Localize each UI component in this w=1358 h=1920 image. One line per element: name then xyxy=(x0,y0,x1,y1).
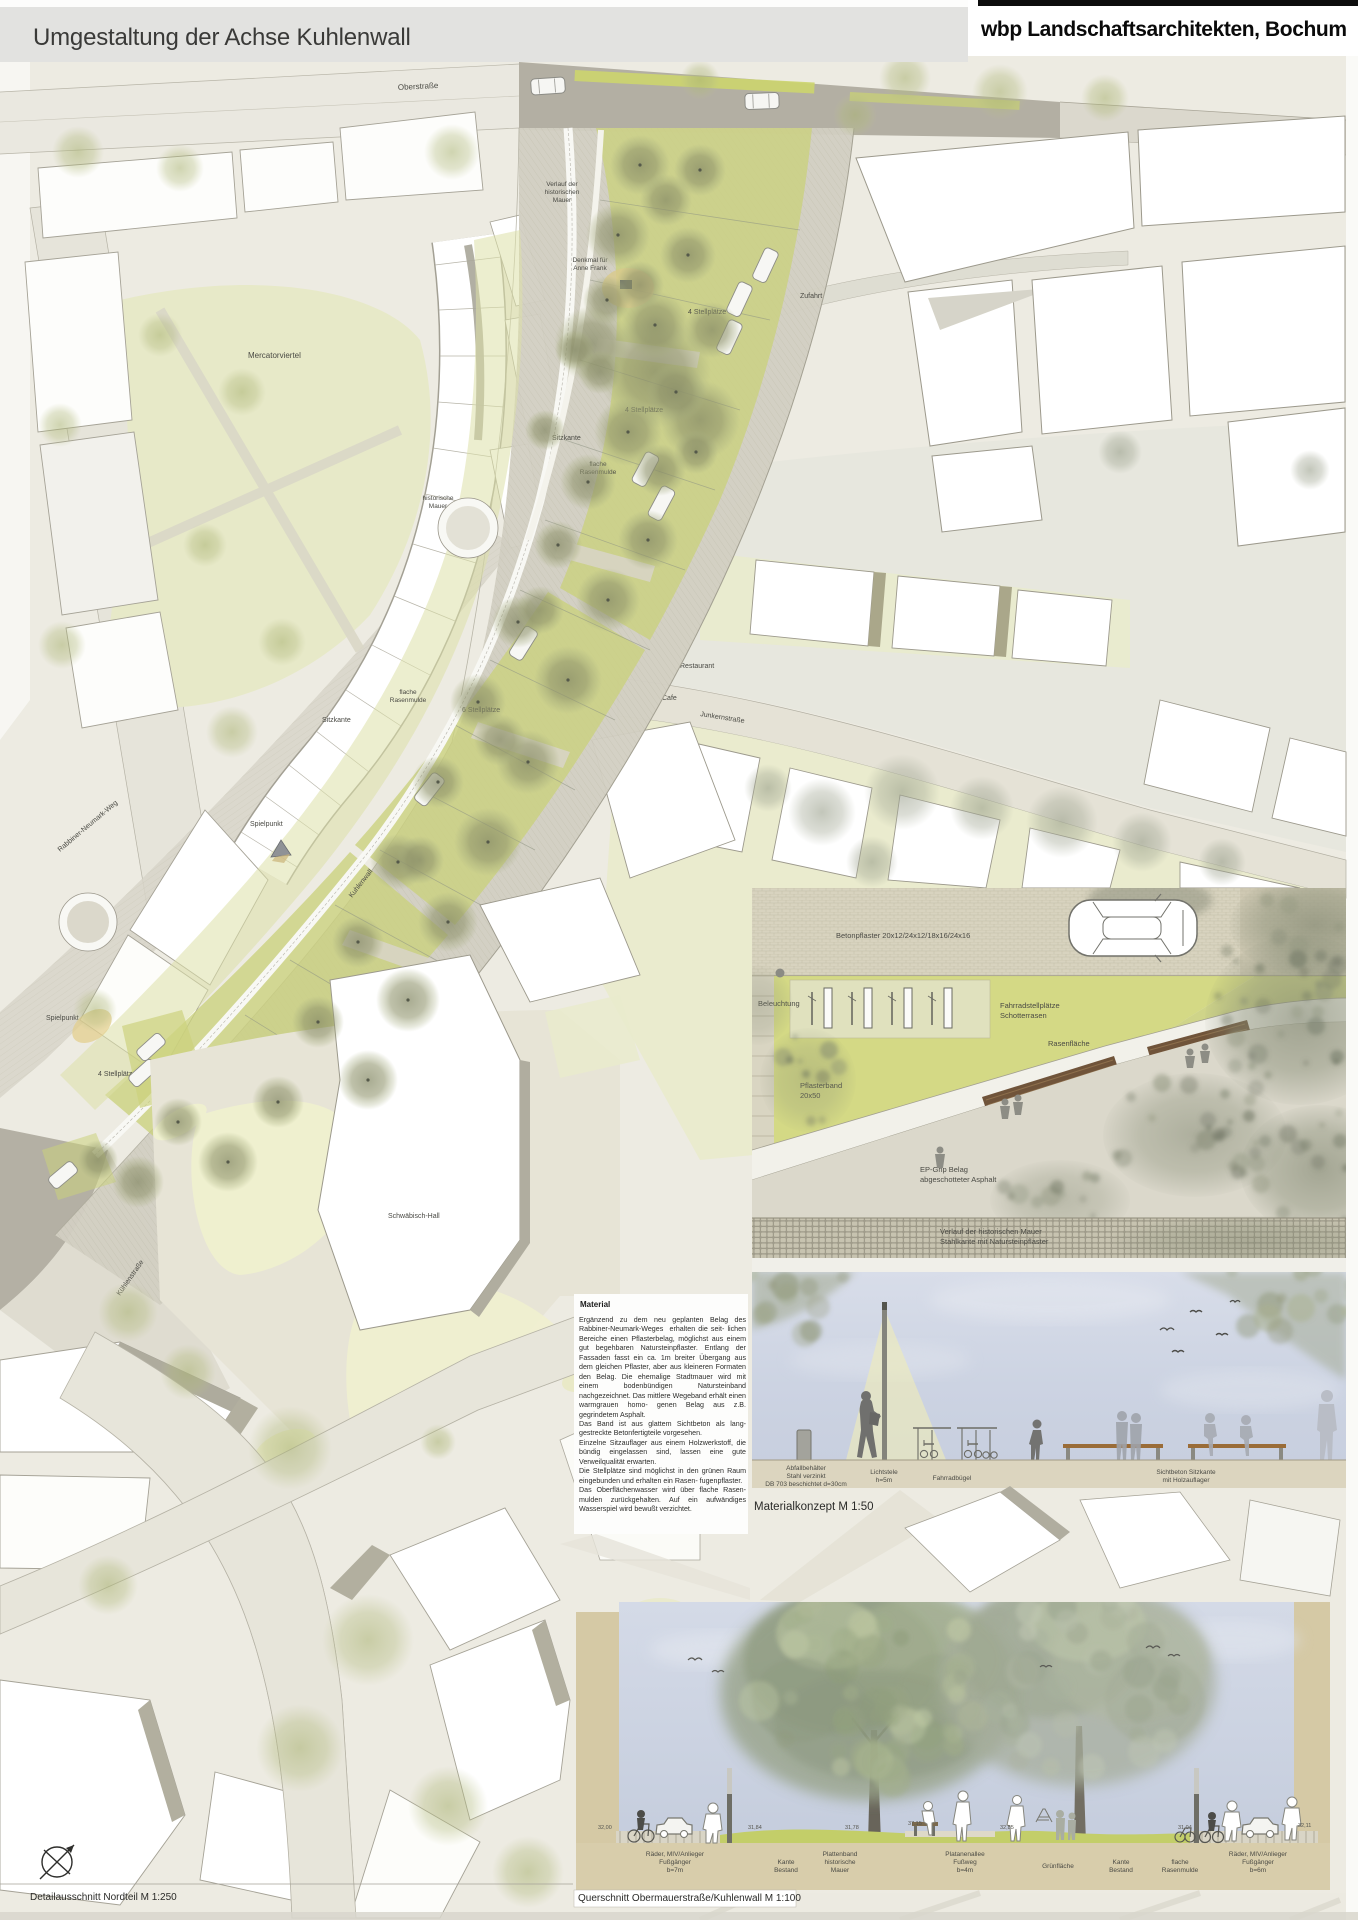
svg-text:31,84: 31,84 xyxy=(748,1825,762,1831)
svg-text:flache: flache xyxy=(399,689,417,696)
svg-text:Verlauf der historischen Mauer: Verlauf der historischen Mauer xyxy=(940,1227,1042,1236)
svg-text:Fußgänger: Fußgänger xyxy=(1242,1859,1275,1866)
svg-text:historische: historische xyxy=(824,1859,855,1866)
svg-text:Abfallbehälter: Abfallbehälter xyxy=(786,1465,827,1472)
svg-text:Spielpunkt: Spielpunkt xyxy=(250,821,283,828)
svg-text:mit Holzauflager: mit Holzauflager xyxy=(1163,1477,1211,1484)
svg-text:Kante: Kante xyxy=(1113,1859,1130,1866)
svg-text:Grünfläche: Grünfläche xyxy=(1042,1863,1074,1870)
svg-text:flache: flache xyxy=(1171,1859,1189,1866)
svg-text:Rasenfläche: Rasenfläche xyxy=(1048,1039,1090,1048)
svg-text:Fußgänger: Fußgänger xyxy=(659,1859,692,1866)
svg-text:b=7m: b=7m xyxy=(667,1867,683,1874)
svg-text:Fahrradstellplätze: Fahrradstellplätze xyxy=(1000,1001,1060,1010)
svg-text:37,15: 37,15 xyxy=(908,1821,922,1827)
svg-text:b=4m: b=4m xyxy=(957,1867,973,1874)
svg-text:Stahlkante mit Natursteinpflas: Stahlkante mit Natursteinpflaster xyxy=(940,1237,1049,1246)
svg-text:Räder, MIV/Anlieger: Räder, MIV/Anlieger xyxy=(1229,1851,1288,1858)
svg-text:Mauer: Mauer xyxy=(553,197,572,204)
svg-text:DB 703 beschichtet d=30cm: DB 703 beschichtet d=30cm xyxy=(765,1481,846,1488)
svg-text:Bestand: Bestand xyxy=(1109,1867,1133,1874)
svg-text:historische: historische xyxy=(422,495,453,502)
svg-text:Stahl verzinkt: Stahl verzinkt xyxy=(786,1473,825,1480)
svg-text:Plattenband: Plattenband xyxy=(823,1851,858,1858)
svg-text:Lichtstele: Lichtstele xyxy=(870,1469,898,1476)
svg-text:Fußweg: Fußweg xyxy=(953,1859,977,1866)
svg-text:EP-Grip Belag: EP-Grip Belag xyxy=(920,1165,968,1174)
svg-text:Betonpflaster 20x12/24x12/18x1: Betonpflaster 20x12/24x12/18x16/24x16 xyxy=(836,931,970,940)
svg-text:Platanenallee: Platanenallee xyxy=(945,1851,985,1858)
svg-text:abgeschotteter Asphalt: abgeschotteter Asphalt xyxy=(920,1175,997,1184)
svg-text:Detailausschnitt Nordteil M 1: Detailausschnitt Nordteil M 1:250 xyxy=(30,1892,177,1903)
svg-text:32,11: 32,11 xyxy=(1298,1823,1311,1829)
svg-text:Verlauf der: Verlauf der xyxy=(546,181,578,188)
svg-text:Sichtbeton Sitzkante: Sichtbeton Sitzkante xyxy=(1156,1469,1216,1476)
svg-text:Mauer: Mauer xyxy=(429,503,448,510)
svg-text:Mauer: Mauer xyxy=(831,1867,850,1874)
svg-text:Spielpunkt: Spielpunkt xyxy=(46,1015,79,1022)
svg-text:Schotterrasen: Schotterrasen xyxy=(1000,1011,1047,1020)
svg-text:32,85: 32,85 xyxy=(1000,1825,1014,1831)
svg-text:Restaurant: Restaurant xyxy=(680,663,714,670)
svg-text:Fahrradbügel: Fahrradbügel xyxy=(933,1475,972,1482)
svg-text:31,04: 31,04 xyxy=(1178,1825,1192,1831)
svg-text:32,00: 32,00 xyxy=(598,1825,612,1831)
svg-text:b=6m: b=6m xyxy=(1250,1867,1266,1874)
svg-text:h=5m: h=5m xyxy=(876,1477,892,1484)
svg-text:Mercatorviertel: Mercatorviertel xyxy=(248,351,301,360)
svg-text:31,78: 31,78 xyxy=(845,1825,859,1831)
svg-text:Rasenmulde: Rasenmulde xyxy=(390,697,427,704)
svg-text:Sitzkante: Sitzkante xyxy=(322,717,351,724)
svg-text:Materialkonzept M 1:50: Materialkonzept M 1:50 xyxy=(754,1501,874,1513)
svg-text:Räder, MIV/Anlieger: Räder, MIV/Anlieger xyxy=(646,1851,705,1858)
svg-text:Bestand: Bestand xyxy=(774,1867,798,1874)
svg-text:Material: Material xyxy=(580,1300,610,1309)
svg-text:Querschnitt Obermauerstraße/K: Querschnitt Obermauerstraße/Kuhlenwall M… xyxy=(578,1893,801,1904)
svg-text:historischen: historischen xyxy=(545,189,580,196)
svg-text:Kante: Kante xyxy=(778,1859,795,1866)
svg-text:Rasenmulde: Rasenmulde xyxy=(1162,1867,1199,1874)
svg-text:Anne Frank: Anne Frank xyxy=(573,265,607,272)
svg-text:Zufahrt: Zufahrt xyxy=(800,293,822,300)
svg-text:Schwäbisch-Hall: Schwäbisch-Hall xyxy=(388,1213,440,1220)
